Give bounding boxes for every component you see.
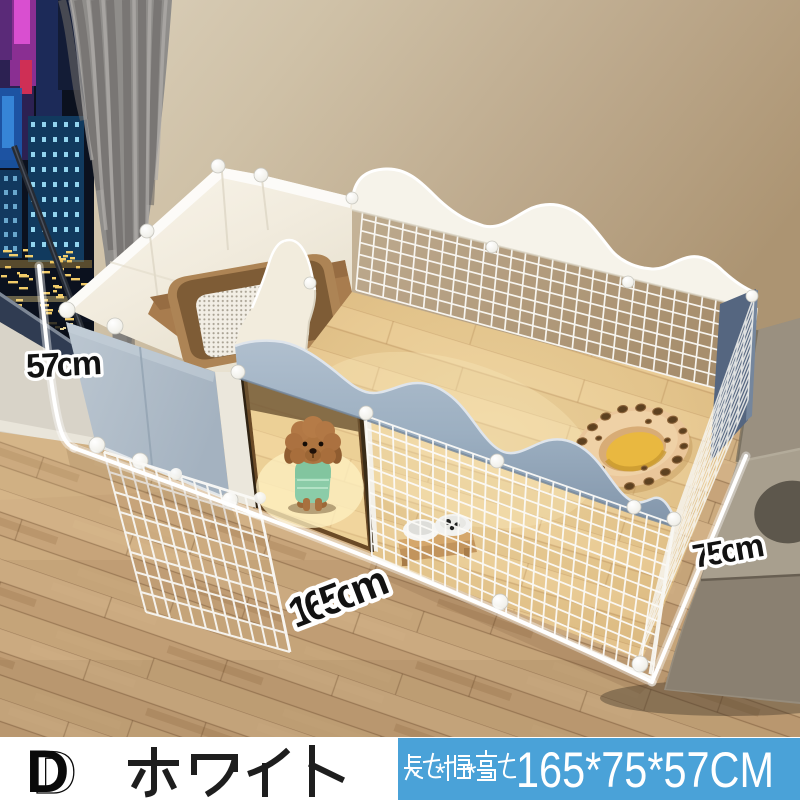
svg-text:57cm: 57cm — [25, 344, 103, 386]
svg-text:*: * — [435, 758, 446, 788]
svg-text:*: * — [466, 758, 477, 788]
svg-text:165*75*57CM: 165*75*57CM — [516, 742, 774, 798]
svg-text:D: D — [33, 739, 76, 800]
